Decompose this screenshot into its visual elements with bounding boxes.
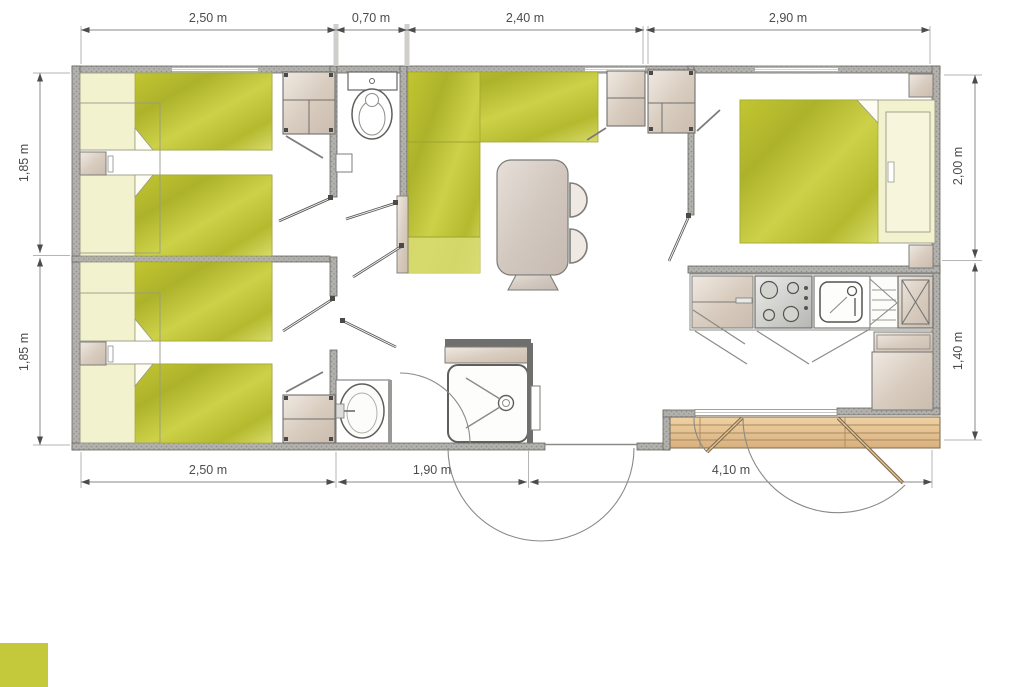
toilet-cistern	[348, 72, 397, 90]
dim-label-right-1: 2,00 m	[951, 147, 965, 185]
dim-label-bottom-1: 2,50 m	[189, 463, 227, 477]
dining-table	[497, 160, 568, 275]
kitchen-tall-unit	[898, 276, 933, 328]
stove-handle	[736, 298, 752, 303]
nightstand-2-handle	[108, 346, 113, 362]
dim-label-top-3: 2,40 m	[506, 11, 544, 25]
floorplan-page: 2,50 m 0,70 m 2,40 m 2,90 m 1,85 m 1,85 …	[0, 0, 1024, 687]
deck-surface	[670, 417, 940, 448]
kitchen-drawer-unit	[870, 276, 898, 328]
terrace-deck	[670, 417, 940, 448]
window-master	[755, 67, 838, 72]
brand-color-swatch	[0, 643, 48, 687]
toilet-paper-holder	[336, 154, 352, 172]
nightstand-1-handle	[108, 156, 113, 172]
double-bed-blanket	[740, 100, 878, 243]
nightstand-2	[80, 342, 106, 365]
basin-faucet	[336, 404, 344, 418]
dim-label-top-1: 2,50 m	[189, 11, 227, 25]
wall-step-horizontal	[663, 410, 695, 417]
nightstand-1	[80, 152, 106, 175]
wall-bedrooms-mid	[330, 257, 337, 296]
master-nightstand-1	[909, 74, 933, 97]
single-bed-3-blanket	[135, 262, 272, 341]
living-area	[397, 72, 598, 290]
towel-ledge	[531, 386, 540, 430]
burner-1	[761, 282, 778, 299]
patio-door-frame	[695, 410, 837, 416]
burner-4	[784, 307, 799, 322]
shower-tray	[448, 365, 528, 442]
dim-label-bottom-2: 1,90 m	[413, 463, 451, 477]
single-bed-4-blanket	[135, 364, 272, 443]
dim-label-top-2: 0,70 m	[352, 11, 390, 25]
dim-label-top-4: 2,90 m	[769, 11, 807, 25]
vanity-divider	[388, 380, 392, 443]
kitchen-sink	[814, 276, 870, 328]
single-bed-1-blanket	[135, 73, 272, 150]
headboard-detail	[888, 162, 894, 182]
shower-drain	[499, 396, 514, 411]
dim-label-left-2: 1,85 m	[17, 333, 31, 371]
dim-label-right-2: 1,40 m	[951, 332, 965, 370]
wall-between-bedrooms	[72, 256, 330, 262]
entrance-door-arc	[448, 448, 634, 541]
dim-label-bottom-3: 4,10 m	[712, 463, 750, 477]
shower-shelf	[445, 347, 531, 363]
sofa-armrest	[397, 196, 408, 273]
single-bed-2-blanket	[135, 175, 272, 256]
sink-faucet	[848, 287, 857, 296]
master-nightstand-2	[909, 245, 933, 268]
wall-bottom-left	[72, 443, 545, 450]
sofa-chaise-end	[408, 237, 480, 273]
fridge	[872, 352, 933, 410]
floorplan-drawing: 2,50 m 0,70 m 2,40 m 2,90 m 1,85 m 1,85 …	[0, 0, 1024, 687]
wall-master-kitchen	[688, 266, 940, 273]
burner-2	[788, 283, 799, 294]
burner-3	[764, 310, 775, 321]
table-pedestal	[508, 275, 558, 290]
dim-label-left-1: 1,85 m	[17, 144, 31, 182]
toilet-hinge	[366, 94, 379, 107]
shower-wall-top	[445, 339, 531, 347]
window-bedroom1	[172, 67, 258, 72]
